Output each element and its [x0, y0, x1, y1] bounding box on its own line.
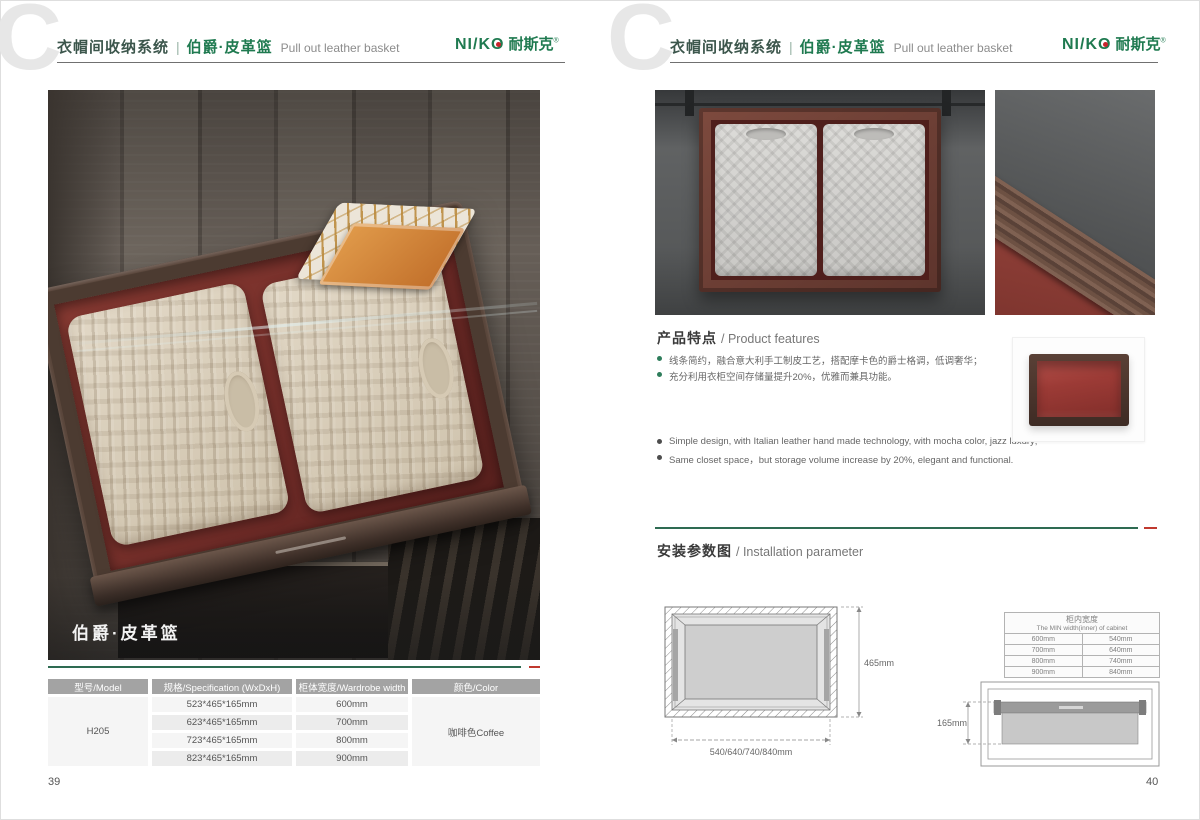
header-separator: |	[176, 39, 180, 55]
logo-red-dot-icon	[496, 42, 501, 47]
spec-row-value: 900mm	[296, 751, 408, 766]
folded-sweater-right	[823, 124, 925, 276]
c-watermark: C	[0, 0, 62, 84]
depth-dimension-label: 465mm	[864, 658, 894, 668]
logo-red-dot-icon	[1103, 42, 1108, 47]
divider-red	[529, 666, 540, 668]
spec-row-value: 700mm	[296, 715, 408, 730]
divider-red	[1144, 527, 1157, 529]
table-row: 800mm740mm	[1005, 656, 1160, 667]
folded-sweater-left	[715, 124, 817, 276]
header-title-cn: 衣帽间收纳系统	[670, 39, 782, 56]
table-row: 700mm640mm	[1005, 645, 1160, 656]
bullet-dot-icon	[657, 372, 662, 377]
drawer-topview-photo	[655, 90, 985, 315]
table-row: 900mm840mm	[1005, 667, 1160, 678]
c-watermark: C	[607, 0, 675, 84]
spec-header-color: 颜色/Color	[412, 679, 540, 694]
min-width-table-header: 柜内宽度 The MIN width(inner) of cabinet	[1005, 613, 1160, 634]
min-width-title-en: The MIN width(inner) of cabinet	[1007, 625, 1157, 632]
spec-header-model: 型号/Model	[48, 679, 148, 694]
basket-frame	[699, 108, 941, 292]
sweater-collar	[220, 368, 264, 434]
logo-o: O	[1098, 36, 1110, 53]
header-rule	[57, 62, 565, 63]
header-product-en: Pull out leather basket	[281, 41, 400, 55]
catalog-spread: C 衣帽间收纳系统|伯爵·皮革篮Pull out leather basket …	[0, 0, 1200, 820]
side-rail-right	[824, 629, 829, 701]
header-title-cn: 衣帽间收纳系统	[57, 39, 169, 56]
caption-gradient	[48, 576, 540, 660]
product-cutout-image	[1012, 337, 1145, 442]
basket-inner-panel	[685, 625, 817, 699]
bullet-dot-icon	[657, 455, 662, 460]
divider-green	[48, 666, 521, 668]
spec-row-value: 523*465*165mm	[152, 697, 292, 712]
rail-brand-strip	[1059, 706, 1083, 709]
logo-latin: NI/K	[455, 36, 491, 53]
table-row: 600mm540mm	[1005, 634, 1160, 645]
logo-cn: 耐斯克	[508, 36, 553, 53]
spec-row-value: 800mm	[296, 733, 408, 748]
closet-rod	[655, 103, 985, 106]
header-product-cn: 伯爵·皮革篮	[800, 39, 886, 56]
side-rail-left	[673, 629, 678, 701]
features-heading-cn: 产品特点	[657, 330, 717, 346]
spec-row-value: 823*465*165mm	[152, 751, 292, 766]
sweater-left	[65, 281, 291, 547]
spec-table: 型号/Model 规格/Specification (WxDxH) 柜体宽度/W…	[48, 679, 540, 766]
height-dimension-label: 165mm	[937, 718, 967, 728]
registered-mark: ®	[553, 38, 558, 45]
page-header: 衣帽间收纳系统|伯爵·皮革篮Pull out leather basket	[670, 36, 1012, 57]
spec-row-value: 600mm	[296, 697, 408, 712]
nisko-logo: NI/KO耐斯克®	[455, 33, 559, 54]
photo-caption: 伯爵·皮革篮	[72, 619, 181, 644]
sweater-collar	[414, 335, 458, 401]
spec-model-value: H205	[48, 697, 148, 766]
bullet-dot-icon	[657, 439, 662, 444]
topview-diagram: 465mm 540/640/740/840mm	[655, 599, 895, 761]
installation-heading-cn: 安装参数图	[657, 543, 732, 559]
feature-bullet-en: Same closet space，but storage volume inc…	[657, 452, 1013, 466]
closet-post	[942, 90, 951, 116]
page-header: 衣帽间收纳系统|伯爵·皮革篮Pull out leather basket	[57, 36, 399, 57]
header-separator: |	[789, 39, 793, 55]
frontview-diagram: 165mm	[935, 678, 1163, 770]
divider-green	[655, 527, 1138, 529]
spec-header-width: 柜体宽度/Wardrobe width	[296, 679, 408, 694]
features-heading-en: / Product features	[721, 332, 820, 346]
bullet-dot-icon	[657, 356, 662, 361]
leather-basket-render	[1029, 354, 1129, 426]
feature-bullet-cn: 线条简约，融合意大利手工制皮工艺，搭配摩卡色的爵士格调，低调奢华；	[657, 353, 983, 367]
spec-row-value: 723*465*165mm	[152, 733, 292, 748]
closet-post	[685, 90, 694, 116]
installation-heading-en: / Installation parameter	[736, 545, 863, 559]
wardrobe-photo: 伯爵·皮革篮	[48, 90, 540, 660]
leather-basket-interior	[1037, 361, 1121, 417]
nisko-logo: NI/KO耐斯克®	[1062, 33, 1166, 54]
basket-interior	[711, 120, 929, 280]
spec-header-specification: 规格/Specification (WxDxH)	[152, 679, 292, 694]
page-number-right: 40	[1146, 776, 1158, 788]
features-heading: 产品特点/ Product features	[657, 328, 820, 348]
header-product-cn: 伯爵·皮革篮	[187, 39, 273, 56]
page-number-left: 39	[48, 776, 60, 788]
logo-o: O	[491, 36, 503, 53]
header-rule	[670, 62, 1158, 63]
header-product-en: Pull out leather basket	[894, 41, 1013, 55]
basket-body	[1002, 713, 1138, 744]
min-width-title-cn: 柜内宽度	[1007, 614, 1157, 625]
spec-color-value: 咖啡色Coffee	[412, 697, 540, 766]
width-dimension-label: 540/640/740/840mm	[710, 747, 793, 757]
logo-latin: NI/K	[1062, 36, 1098, 53]
min-width-table: 柜内宽度 The MIN width(inner) of cabinet 600…	[1004, 612, 1160, 678]
spec-row-value: 623*465*165mm	[152, 715, 292, 730]
installation-heading: 安装参数图/ Installation parameter	[657, 541, 863, 561]
logo-cn: 耐斯克	[1115, 36, 1160, 53]
basket-corner-detail-photo	[995, 90, 1155, 315]
feature-bullet-cn: 充分利用衣柜空间存储量提升20%，优雅而兼具功能。	[657, 369, 897, 383]
feature-bullet-en: Simple design, with Italian leather hand…	[657, 436, 1037, 447]
registered-mark: ®	[1160, 38, 1165, 45]
silk-scarf	[305, 186, 505, 309]
